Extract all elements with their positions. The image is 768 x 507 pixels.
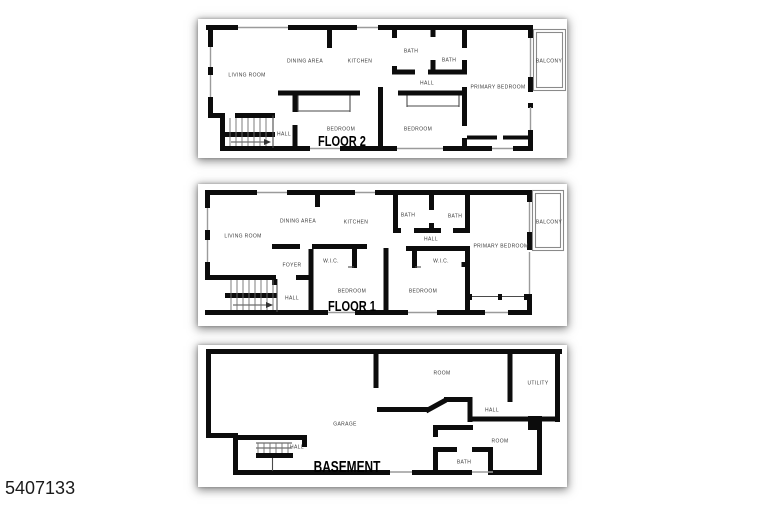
room-label-bath-basement: BATH xyxy=(457,461,471,466)
floor1-title: FLOOR 1 xyxy=(328,299,376,314)
room-label-living-room-f2: LIVING ROOM xyxy=(228,74,265,79)
floor2-title: FLOOR 2 xyxy=(318,134,366,149)
room-label-balcony-f2: BALCONY xyxy=(536,60,562,65)
room-label-foyer-f1: FOYER xyxy=(283,264,302,269)
basement-corner-block xyxy=(528,416,542,430)
room-label-wic1-f1: W.I.C. xyxy=(323,260,339,265)
room-label-balcony-f1: BALCONY xyxy=(536,221,562,226)
room-label-kitchen-f1: KITCHEN xyxy=(344,221,368,226)
room-label-room-top: ROOM xyxy=(434,372,451,377)
room-label-garage: GARAGE xyxy=(333,423,357,428)
room-label-room-bottom: ROOM xyxy=(492,440,509,445)
room-label-kitchen-f2: KITCHEN xyxy=(348,60,372,65)
room-label-bath2-f2: BATH xyxy=(442,59,456,64)
room-label-primary-bedroom-f2: PRIMARY BEDROOM xyxy=(470,86,525,91)
room-label-utility: UTILITY xyxy=(527,382,548,387)
photo-id-label: 5407133 xyxy=(5,479,75,499)
floorplan-image: LIVING ROOM DINING AREA KITCHEN BATH BAT… xyxy=(0,0,768,507)
room-label-bath2-f1: BATH xyxy=(448,215,462,220)
room-label-bath1-f2: BATH xyxy=(404,50,418,55)
room-label-hall-basement: HALL xyxy=(485,409,499,414)
room-label-dining-area-f2: DINING AREA xyxy=(287,60,323,65)
basement-walls xyxy=(206,349,562,475)
room-label-stair-hall-basement: HALL xyxy=(290,446,304,451)
room-label-stair-hall-f2: HALL xyxy=(277,133,291,138)
room-label-stair-hall-f1: HALL xyxy=(285,297,299,302)
room-label-bedroom2-f1: BEDROOM xyxy=(409,290,437,295)
room-label-dining-area-f1: DINING AREA xyxy=(280,220,316,225)
floor1-stair-arrow xyxy=(266,302,273,308)
room-label-hall-f1: HALL xyxy=(424,238,438,243)
floor2-stair-arrow xyxy=(264,139,271,145)
basement-title: BASEMENT xyxy=(314,458,381,474)
room-label-hall-f2: HALL xyxy=(420,82,434,87)
floorplan-drawing xyxy=(0,0,768,507)
floor1-closet-lines xyxy=(233,267,528,312)
room-label-living-room-f1: LIVING ROOM xyxy=(224,235,261,240)
room-label-primary-bedroom-f1: PRIMARY BEDROOM xyxy=(473,245,528,250)
room-label-bath1-f1: BATH xyxy=(401,214,415,219)
room-label-wic2-f1: W.I.C. xyxy=(433,260,449,265)
room-label-bedroom2-f2: BEDROOM xyxy=(404,128,432,133)
room-label-bedroom1-f1: BEDROOM xyxy=(338,290,366,295)
